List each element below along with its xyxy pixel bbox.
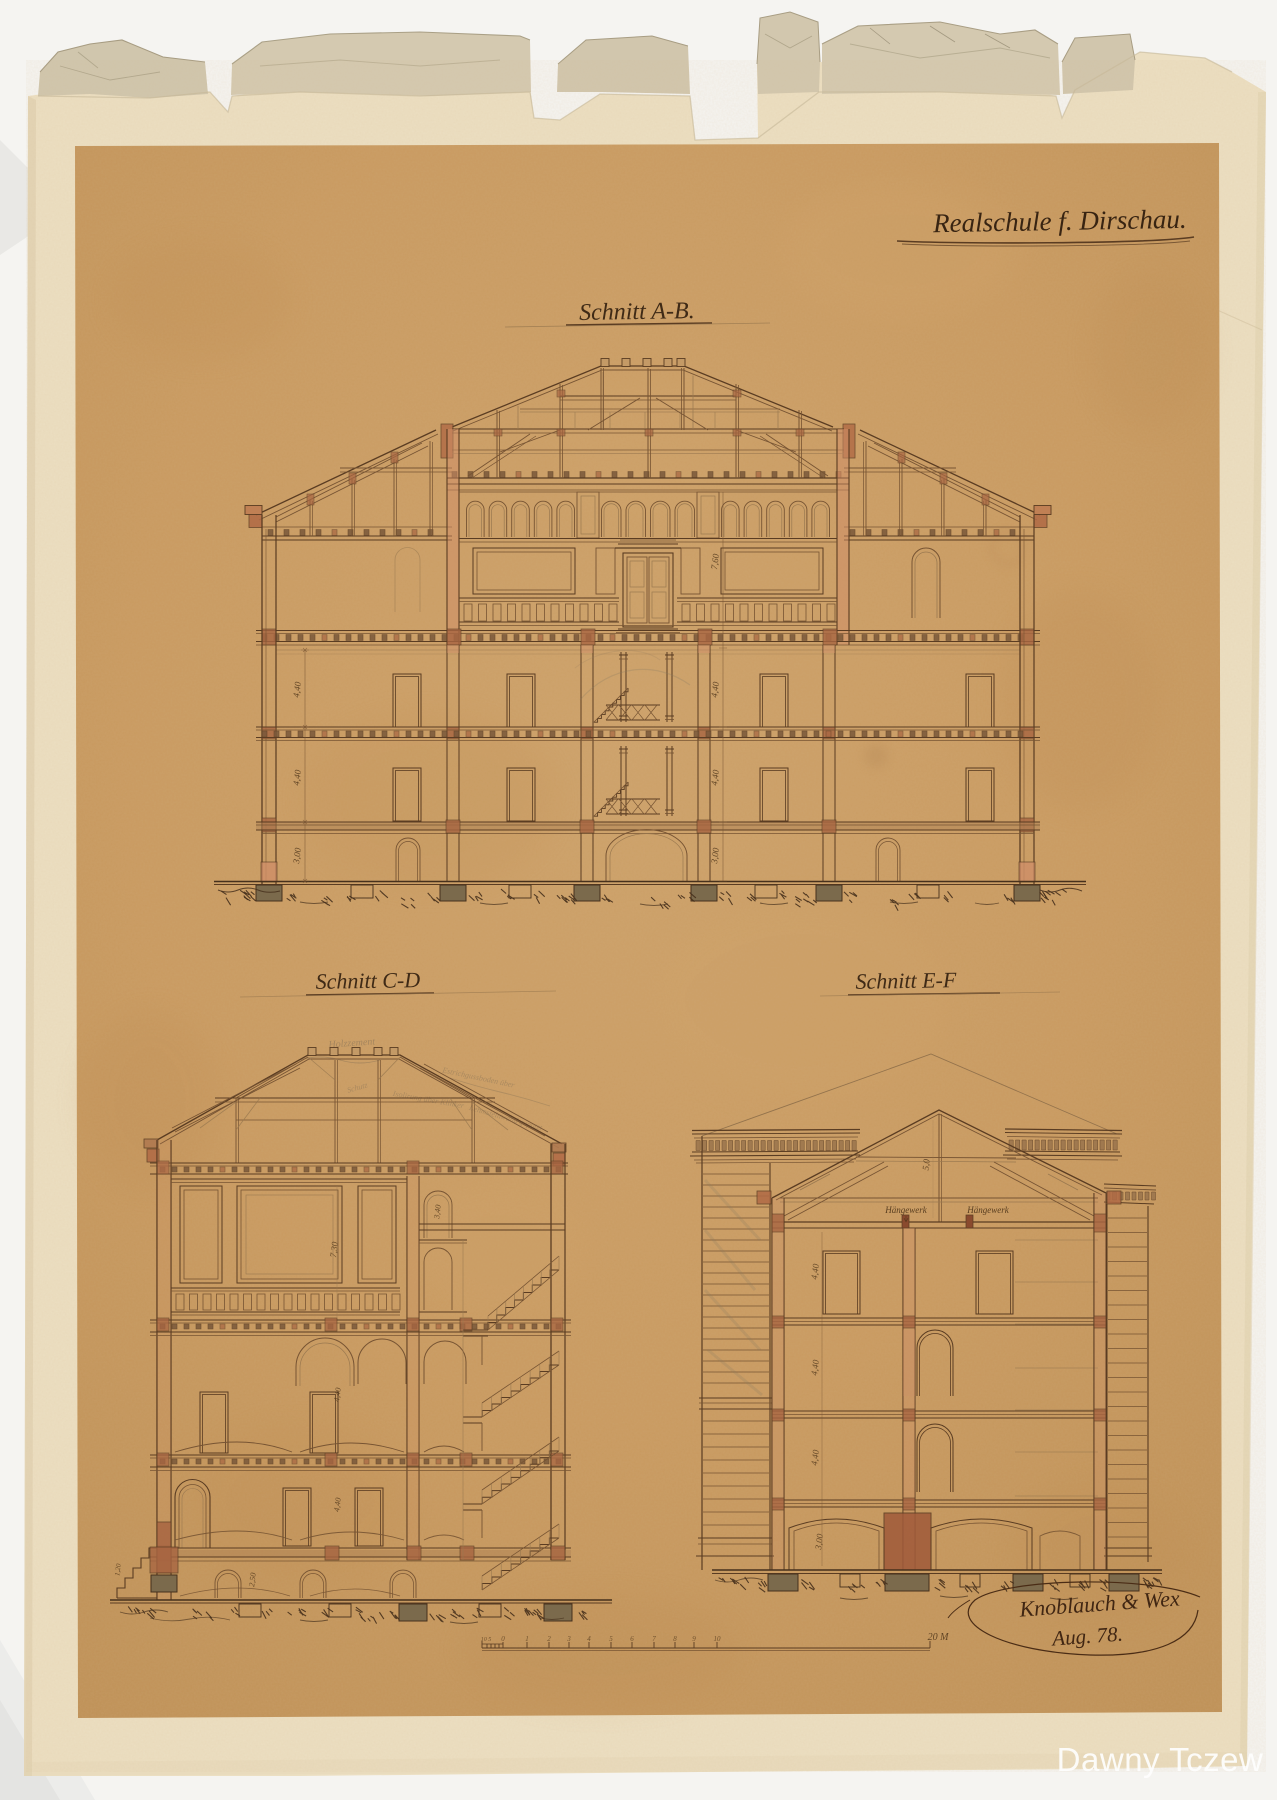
svg-text:7: 7 bbox=[652, 1635, 656, 1643]
svg-text:3,00: 3,00 bbox=[291, 847, 303, 865]
svg-text:Realschule f. Dirschau.: Realschule f. Dirschau. bbox=[932, 204, 1187, 238]
svg-text:Aug. 78.: Aug. 78. bbox=[1049, 1622, 1123, 1651]
svg-text:4,40: 4,40 bbox=[291, 681, 303, 698]
svg-text:Schnitt C-D: Schnitt C-D bbox=[315, 967, 420, 994]
svg-text:20 M: 20 M bbox=[928, 1632, 950, 1643]
svg-text:2: 2 bbox=[547, 1635, 551, 1643]
svg-text:8: 8 bbox=[673, 1635, 677, 1643]
svg-text:7,30: 7,30 bbox=[328, 1241, 340, 1258]
svg-text:5,0: 5,0 bbox=[920, 1158, 931, 1171]
svg-text:1,20: 1,20 bbox=[113, 1563, 122, 1577]
svg-text:4,40: 4,40 bbox=[291, 769, 303, 786]
svg-text:Schnitt E-F: Schnitt E-F bbox=[855, 967, 957, 994]
svg-text:4,40: 4,40 bbox=[809, 1263, 821, 1280]
svg-text:4: 4 bbox=[587, 1635, 591, 1643]
svg-text:3,40: 3,40 bbox=[432, 1204, 443, 1220]
svg-text:4,40: 4,40 bbox=[332, 1497, 343, 1512]
svg-text:3,00: 3,00 bbox=[709, 847, 721, 865]
svg-text:7,60: 7,60 bbox=[709, 553, 721, 570]
svg-text:4,40: 4,40 bbox=[809, 1449, 821, 1466]
svg-text:4,40: 4,40 bbox=[809, 1359, 821, 1376]
svg-text:4,40: 4,40 bbox=[332, 1387, 343, 1402]
svg-text:9: 9 bbox=[692, 1635, 696, 1643]
svg-text:3: 3 bbox=[566, 1635, 571, 1643]
svg-text:3,00: 3,00 bbox=[813, 1533, 825, 1551]
svg-text:10 5: 10 5 bbox=[481, 1637, 492, 1643]
svg-text:5: 5 bbox=[609, 1635, 613, 1643]
svg-text:0: 0 bbox=[501, 1635, 505, 1643]
svg-text:Hängewerk: Hängewerk bbox=[884, 1205, 927, 1215]
svg-text:Hängewerk: Hängewerk bbox=[966, 1205, 1009, 1215]
svg-text:6: 6 bbox=[630, 1635, 634, 1643]
svg-text:4,40: 4,40 bbox=[709, 681, 721, 698]
svg-text:4,40: 4,40 bbox=[709, 769, 721, 786]
svg-text:Schnitt A-B.: Schnitt A-B. bbox=[579, 298, 695, 326]
svg-text:10: 10 bbox=[714, 1635, 722, 1643]
svg-text:1: 1 bbox=[525, 1635, 529, 1643]
svg-text:2,50: 2,50 bbox=[247, 1572, 258, 1587]
svg-text:Dawny Tczew: Dawny Tczew bbox=[1057, 1741, 1264, 1778]
